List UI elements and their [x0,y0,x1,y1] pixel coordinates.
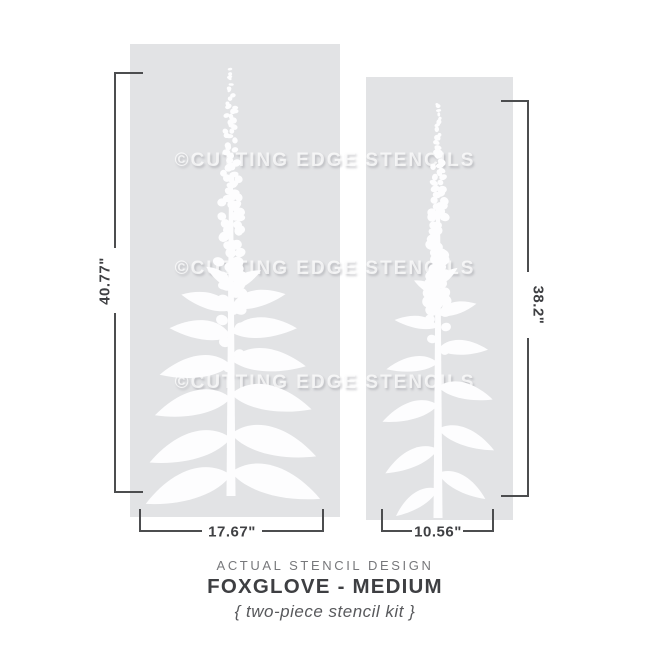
foxglove-stencil-art-right [366,77,513,520]
dim-right-width-tick-left [381,509,383,532]
dim-left-height-line-upper [114,74,116,248]
dim-left-width-line-right [262,530,322,532]
dim-right-height-cap-bottom [501,495,529,497]
dim-left-height-line-lower [114,313,116,491]
dim-left-height-cap-top [114,72,143,74]
page-title: FOXGLOVE - MEDIUM [0,575,650,599]
dim-left-height-label: 40.77" [97,257,114,305]
dim-right-width-label: 10.56" [414,524,462,541]
dim-right-width-tick-right [492,509,494,532]
caption-kicker: ACTUAL STENCIL DESIGN [0,558,650,573]
dim-left-width-line-left [141,530,202,532]
product-image: ©CUTTING EDGE STENCILS ©CUTTING EDGE STE… [0,0,650,650]
foxglove-stencil-art-left [130,44,340,517]
dim-left-width-tick-right [322,509,324,532]
dim-right-width-line-left [383,530,412,532]
dim-right-height-line-lower [527,338,529,495]
dim-right-height-cap-top [501,100,529,102]
dim-right-width-line-right [463,530,492,532]
dim-left-width-tick-left [139,509,141,532]
dim-right-height-label: 38.2" [530,286,547,325]
caption-subtitle: { two-piece stencil kit } [0,602,650,622]
dim-right-height-line-upper [527,102,529,272]
dim-left-width-label: 17.67" [208,524,256,541]
dim-left-height-cap-bottom [114,491,143,493]
